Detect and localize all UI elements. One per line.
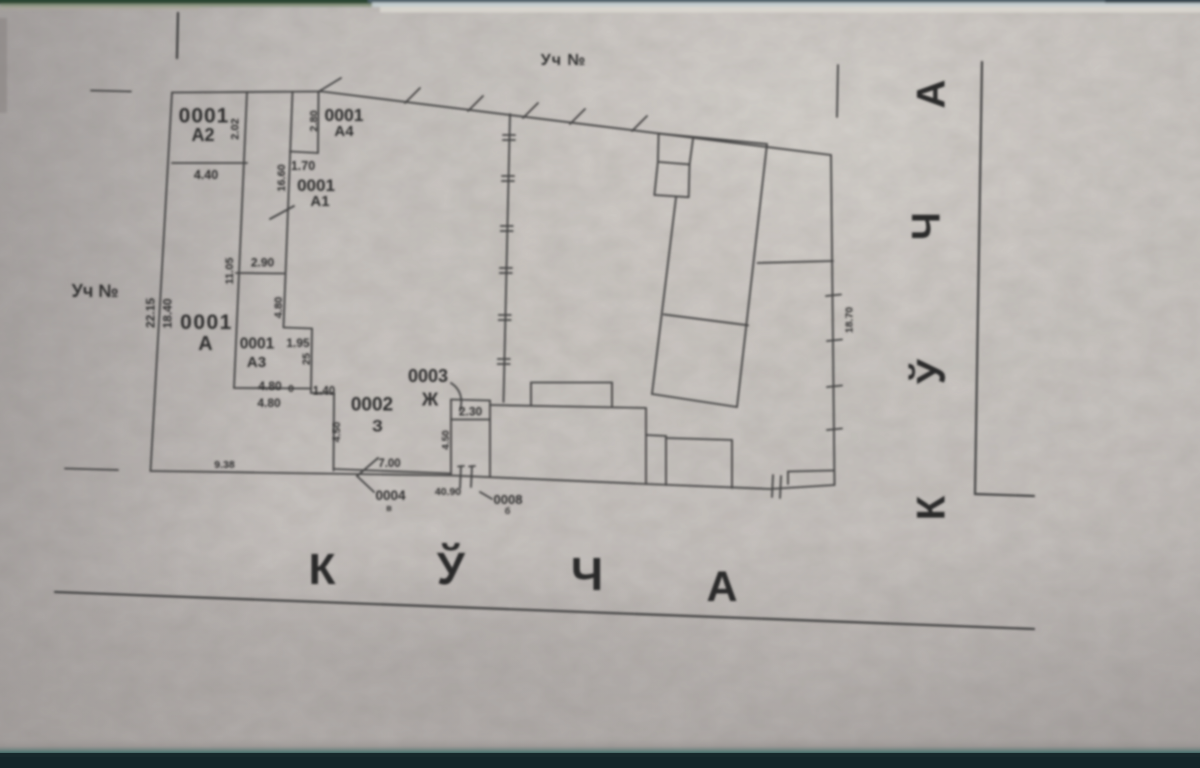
svg-text:0008: 0008 (494, 492, 523, 507)
svg-text:25: 25 (301, 353, 313, 365)
svg-text:2.90: 2.90 (251, 256, 275, 270)
svg-text:1.40: 1.40 (313, 386, 335, 398)
svg-text:Уч №: Уч № (72, 281, 119, 301)
svg-text:16.60: 16.60 (276, 164, 288, 192)
svg-text:А1: А1 (310, 193, 329, 210)
svg-text:9.38: 9.38 (214, 459, 235, 471)
svg-text:в: в (386, 503, 392, 513)
svg-text:4.40: 4.40 (194, 168, 218, 182)
svg-text:1.95: 1.95 (286, 336, 310, 350)
svg-text:7.00: 7.00 (378, 458, 400, 470)
svg-text:Ў: Ў (436, 543, 466, 594)
svg-text:4.80: 4.80 (258, 379, 282, 393)
svg-text:А: А (198, 333, 212, 355)
svg-text:Ч: Ч (571, 548, 603, 600)
svg-text:А: А (910, 80, 954, 109)
svg-text:40.90: 40.90 (435, 486, 461, 498)
svg-text:Ж: Ж (421, 390, 439, 410)
svg-text:2.02: 2.02 (230, 118, 242, 139)
svg-text:З: З (372, 417, 383, 436)
svg-text:1.70: 1.70 (291, 159, 315, 173)
svg-text:18.70: 18.70 (844, 307, 856, 333)
svg-text:2.30: 2.30 (459, 405, 483, 419)
svg-text:11.05: 11.05 (224, 258, 236, 285)
svg-text:2.80: 2.80 (309, 110, 321, 131)
svg-text:4.50: 4.50 (441, 430, 452, 450)
svg-text:А: А (706, 563, 737, 611)
svg-text:Уч №: Уч № (541, 52, 587, 69)
svg-text:0004: 0004 (375, 488, 406, 503)
svg-text:Ў: Ў (907, 358, 954, 385)
svg-text:18.40: 18.40 (161, 298, 175, 328)
svg-text:0001: 0001 (240, 336, 275, 353)
svg-text:4.50: 4.50 (331, 422, 343, 443)
svg-text:б: б (505, 506, 511, 516)
svg-text:0001: 0001 (325, 105, 364, 125)
svg-text:0003: 0003 (408, 366, 448, 386)
svg-text:4.80: 4.80 (273, 297, 285, 318)
svg-text:0001: 0001 (180, 311, 233, 334)
svg-text:К: К (309, 545, 336, 594)
svg-text:0002: 0002 (351, 395, 393, 416)
svg-text:0: 0 (288, 384, 294, 395)
svg-text:К: К (910, 495, 954, 520)
svg-text:4.80: 4.80 (257, 396, 281, 410)
svg-text:А4: А4 (334, 123, 354, 140)
svg-text:А2: А2 (191, 125, 214, 145)
svg-text:Ч: Ч (905, 212, 949, 240)
svg-text:А3: А3 (247, 354, 266, 371)
svg-text:22.15: 22.15 (144, 298, 158, 328)
